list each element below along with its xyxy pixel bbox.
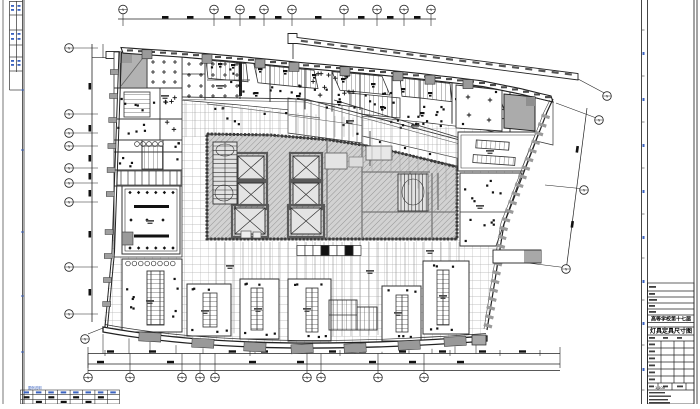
svg-text:1:100: 1:100	[655, 385, 666, 390]
svg-text:灯具定具尺寸图: 灯具定具尺寸图	[650, 327, 692, 335]
svg-text:高等学校第十七届: 高等学校第十七届	[651, 316, 691, 323]
svg-text:图例说明: 图例说明	[28, 385, 42, 390]
